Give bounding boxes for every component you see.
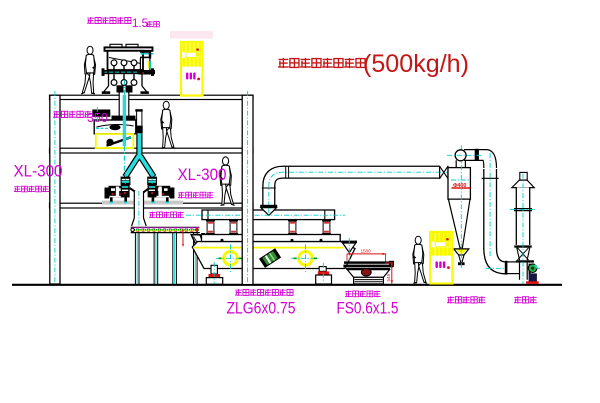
svg-text:XL-300: XL-300 <box>14 161 63 180</box>
svg-text:(500kg/h): (500kg/h) <box>363 50 469 78</box>
svg-text:FS0.6x1.5: FS0.6x1.5 <box>337 300 399 318</box>
svg-text:ZLG6x0.75: ZLG6x0.75 <box>227 300 296 318</box>
svg-text:1.5: 1.5 <box>132 18 148 30</box>
svg-text:XL-300: XL-300 <box>178 165 227 184</box>
svg-text:545: 545 <box>386 273 391 281</box>
svg-text:1500: 1500 <box>361 249 372 254</box>
